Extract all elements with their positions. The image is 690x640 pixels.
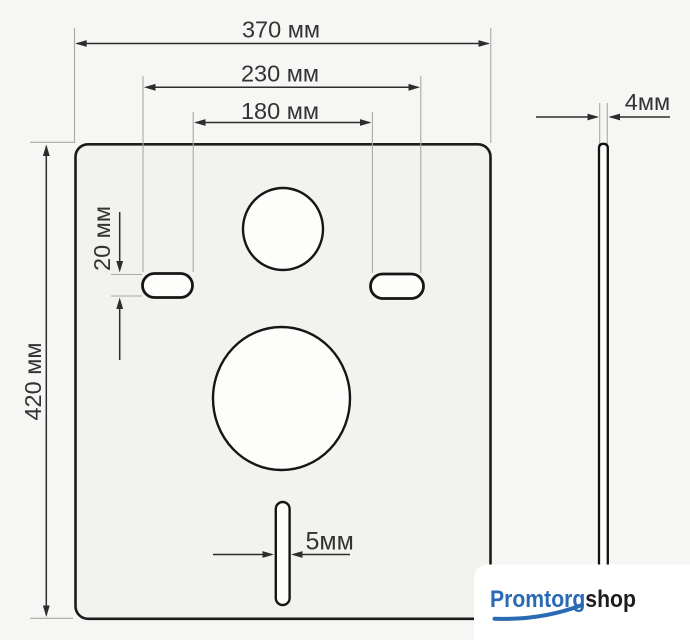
svg-text:5мм: 5мм [306, 528, 354, 556]
svg-text:230 мм: 230 мм [241, 61, 319, 87]
svg-text:370 мм: 370 мм [242, 17, 320, 43]
svg-text:180 мм: 180 мм [241, 98, 319, 124]
svg-text:20 мм: 20 мм [89, 206, 115, 271]
svg-text:420 мм: 420 мм [20, 342, 46, 420]
svg-text:4мм: 4мм [625, 89, 670, 115]
svg-text:Promtorgshop: Promtorgshop [490, 586, 636, 613]
